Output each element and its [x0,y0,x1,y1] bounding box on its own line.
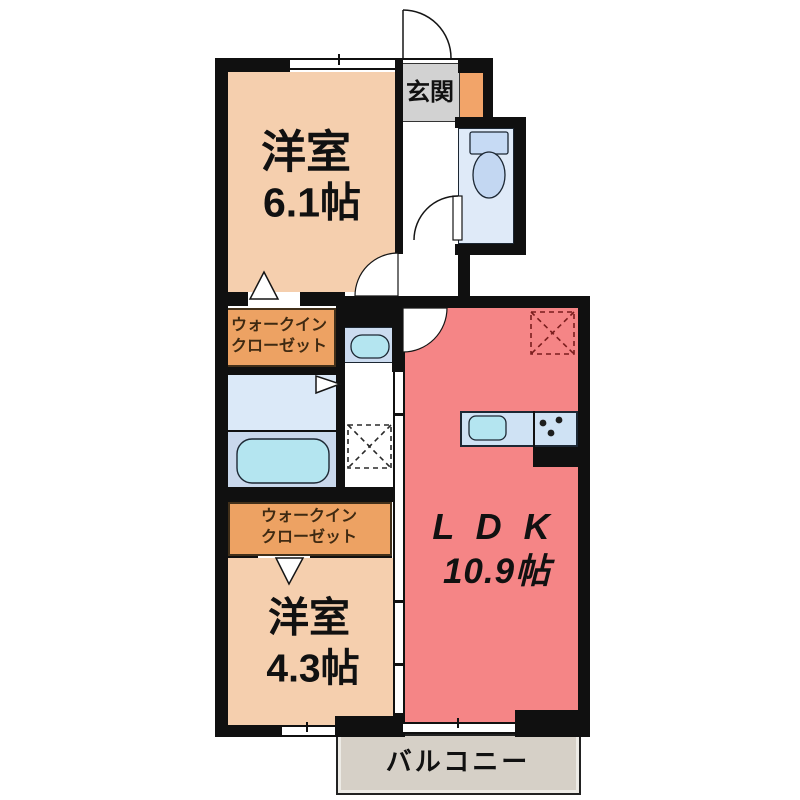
ldk-name-label: L D K [432,507,555,547]
partition-tick-1 [393,413,405,416]
walkin-closet2-line2: クローゼット [261,528,357,549]
toilet-room-area [458,128,514,244]
bathroom-area [228,432,336,487]
wall-bottom-block2 [515,710,583,737]
bedroom2-size-label: 4.3帖 [266,649,359,692]
floor-plan: 玄関 洋室 6.1帖 ウォークイン クローゼット ウォークイン クローゼット L… [0,0,800,800]
bedroom1-size-label: 6.1帖 [263,180,361,225]
window-bedroom1 [290,58,395,70]
partition-bedroom2-ldk [393,372,405,725]
partition-tick-3 [393,663,405,666]
partition-tick-2 [393,600,405,603]
wall-bottom-bedroom2 [215,725,282,737]
window-bedroom2 [282,725,335,737]
wall-entrance-right [483,58,493,117]
walkin-closet1-label: ウォークイン クローゼット [231,316,327,358]
wall-top-bedroom1 [215,58,290,72]
wall-closet2-bottom-b [310,556,392,558]
shoe-cabinet [460,73,483,117]
wall-closet2-bottom-a [228,556,258,558]
bedroom2-name-label: 洋室 [268,595,350,640]
wall-ldk-top [398,296,590,308]
wall-toilet-right [514,117,526,255]
wall-bath-bottom [215,487,400,502]
wall-left [215,58,228,737]
wall-closet1-bottom [215,367,345,375]
entrance-label: 玄関 [406,80,454,106]
window-bedroom2-tick [306,722,308,732]
counter-seam [533,411,535,447]
wall-basin-right [392,296,405,372]
walkin-closet2-line1: ウォークイン [261,507,357,528]
washbasin-unit [343,327,393,363]
entrance-door-icon [403,10,451,58]
wall-hall-divider [395,58,403,254]
washroom-area [228,375,336,431]
entrance-threshold [403,58,458,60]
wall-right [578,296,590,737]
washing-machine-space-icon [348,425,391,468]
wall-below-toilet [458,255,470,297]
window-balcony [403,722,515,734]
walkin-closet1-line2: クローゼット [231,337,327,358]
wall-bath-strip-v [336,375,345,487]
window-balcony-tick [457,718,459,728]
walkin-closet2-label: ウォークイン クローゼット [261,507,357,549]
wall-bedroom1-closet-a [215,292,248,306]
walkin-closet1-line1: ウォークイン [231,316,327,337]
balcony-label: バルコニー [386,748,530,777]
kitchen-counter [460,411,578,447]
window-bedroom1-tick [338,54,340,65]
wall-toilet-bottom [455,244,526,255]
ldk-size-label: 10.9帖 [443,553,551,592]
bedroom1-name-label: 洋室 [261,127,351,177]
toilet-door-icon [414,196,462,240]
bedroom2-area [228,558,393,725]
